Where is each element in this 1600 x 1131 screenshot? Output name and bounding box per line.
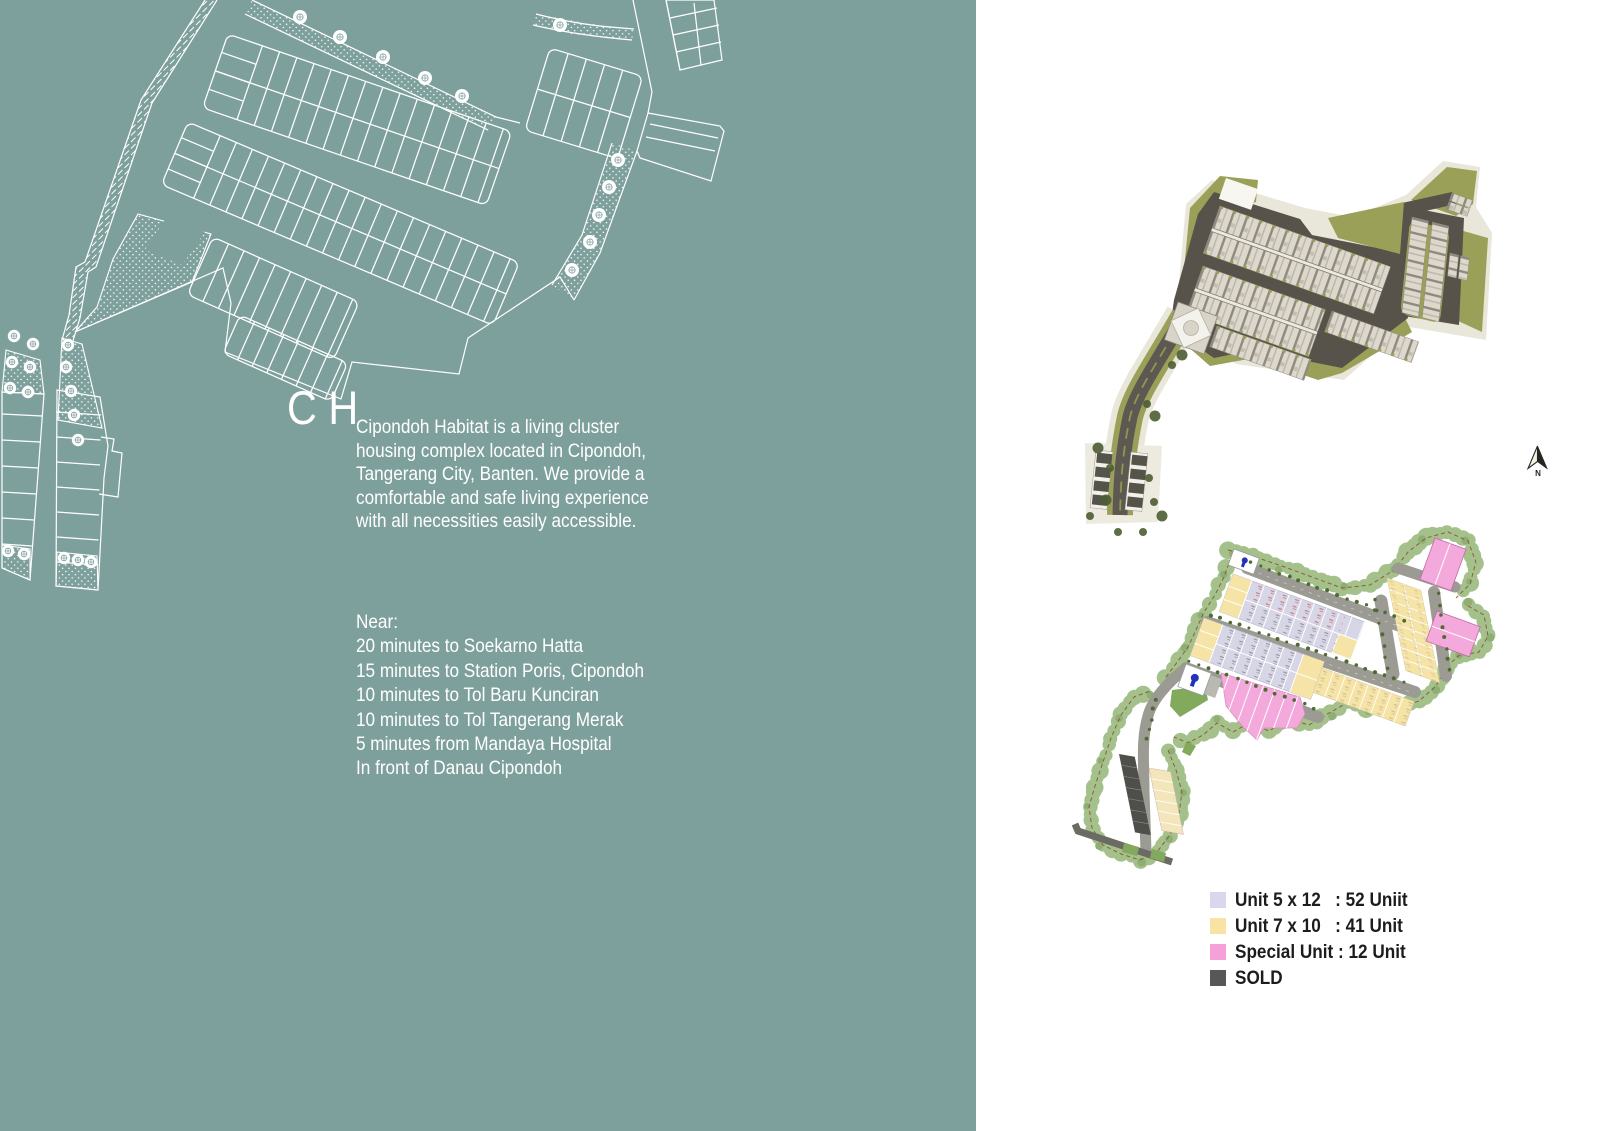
svg-text:N: N <box>1535 469 1541 478</box>
